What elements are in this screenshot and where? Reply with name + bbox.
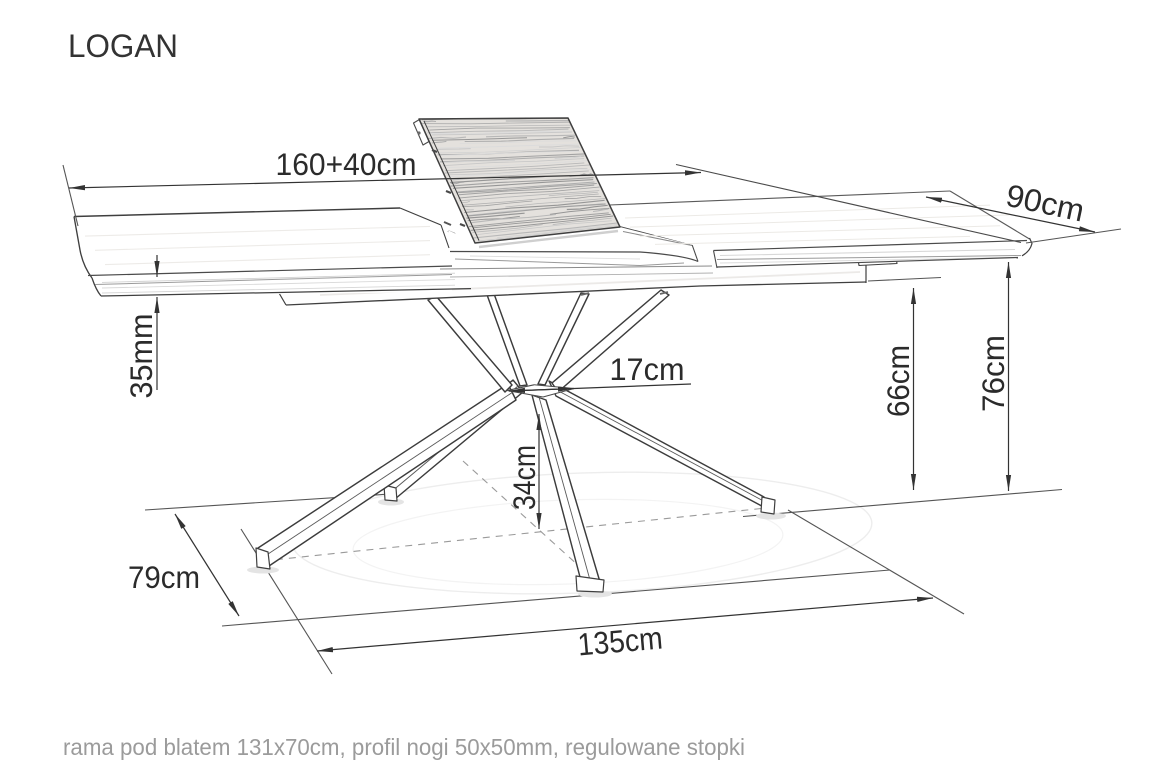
- svg-text:160+40cm: 160+40cm: [276, 146, 417, 182]
- svg-text:66cm: 66cm: [880, 345, 916, 417]
- svg-text:34cm: 34cm: [506, 445, 542, 510]
- svg-text:90cm: 90cm: [1003, 177, 1088, 229]
- svg-text:35mm: 35mm: [123, 314, 159, 399]
- svg-text:rama pod blatem 131x70cm, prof: rama pod blatem 131x70cm, profil nogi 50…: [63, 734, 745, 760]
- svg-text:17cm: 17cm: [610, 351, 685, 387]
- svg-text:79cm: 79cm: [128, 559, 200, 595]
- svg-text:LOGAN: LOGAN: [68, 28, 178, 64]
- svg-text:76cm: 76cm: [975, 335, 1011, 412]
- svg-text:135cm: 135cm: [576, 620, 664, 663]
